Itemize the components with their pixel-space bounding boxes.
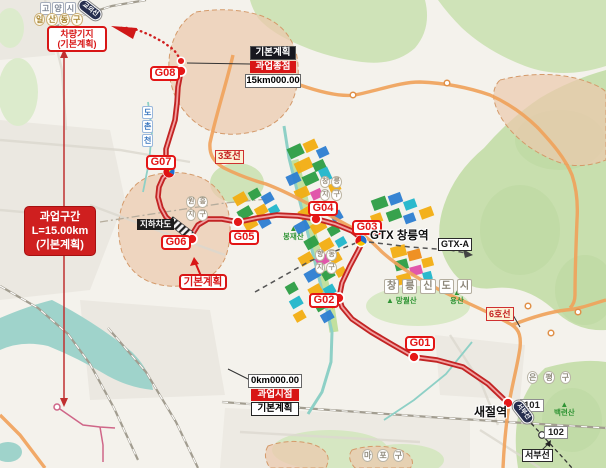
marker-g01 xyxy=(409,352,419,362)
station-label-g08: G08 xyxy=(150,66,180,81)
char-box: 천 xyxy=(142,134,153,147)
char-box: 구 xyxy=(393,449,404,462)
char-box: 시 xyxy=(457,279,472,294)
char-box: 산 xyxy=(46,13,57,26)
char-box: 릉 xyxy=(402,279,417,294)
station-label-g01: G01 xyxy=(405,336,435,351)
marker-g03-transfer xyxy=(355,235,366,246)
char-box: 창 xyxy=(384,279,399,294)
mt-baengnyeon: ▲ 백련산 xyxy=(554,401,575,417)
seobu-line-badge: 서부선 xyxy=(522,449,553,462)
char-box: 구 xyxy=(197,209,207,221)
label-wonheung-district: 원흥지구 xyxy=(186,196,208,221)
label-ilsan-donggu: 일산동구 xyxy=(34,13,83,26)
line3-badge: 3호선 xyxy=(215,150,244,164)
underpass-badge: 지하차도 xyxy=(137,219,174,230)
char-box: 신 xyxy=(420,279,435,294)
startpoint-chainage: 0km000.00 xyxy=(248,374,302,388)
mt-mangwol: ▲ 망월산 xyxy=(386,297,417,305)
startpoint-name: 과업시점 xyxy=(251,389,299,401)
marker-g08-upper xyxy=(177,57,185,65)
char-box: 구 xyxy=(560,371,571,384)
route-plan-map: 고양시 일산동구 교외선 차량기지 (기본계획) 기본계획 과업종점 15km0… xyxy=(0,0,606,468)
section-line3: (기본계획) xyxy=(27,238,93,252)
planned-branch-pink xyxy=(57,407,115,462)
char-box: 향 xyxy=(315,249,325,261)
label-mapo-gu: 마포구 xyxy=(362,449,404,462)
char-box: 포 xyxy=(377,449,388,462)
char-box: 은 xyxy=(527,371,538,384)
branch-endpoint xyxy=(54,404,60,410)
char-box: 동 xyxy=(326,249,336,261)
section-badge: 과업구간 L=15.00km (기본계획) xyxy=(24,206,96,256)
char-box: 동 xyxy=(59,13,70,26)
basic-plan-callout: 기본계획 xyxy=(179,274,227,290)
char-box: 지 xyxy=(186,209,196,221)
char-box: 구 xyxy=(326,262,336,274)
label-changneung-district: 창릉지구 xyxy=(320,176,342,201)
station-label-g06: G06 xyxy=(161,235,191,250)
station-label-g02: G02 xyxy=(309,293,339,308)
char-box: 구 xyxy=(71,13,82,26)
char-box: 창 xyxy=(320,176,330,188)
char-box: 릉 xyxy=(331,176,341,188)
depot-arrow xyxy=(111,26,137,39)
station-label-g04: G04 xyxy=(308,201,338,216)
char-box: 촌 xyxy=(142,120,153,133)
startpoint-callout: 0km000.00 과업시점 기본계획 xyxy=(248,374,302,416)
label-stream-dochon: 도촌천 xyxy=(142,106,153,147)
char-box: 도 xyxy=(439,279,454,294)
saejeol-station-name: 새절역 xyxy=(474,403,507,420)
mt-yong-name: 용산 xyxy=(450,296,464,305)
line6-badge: 6호선 xyxy=(486,307,514,321)
char-box: 지 xyxy=(315,262,325,274)
char-box: 흥 xyxy=(197,196,207,208)
char-box: 일 xyxy=(34,13,45,26)
endpoint-name: 과업종점 xyxy=(250,61,296,73)
station-102-badge: 102 xyxy=(544,426,568,439)
label-eunpyeong-gu: 은평구 xyxy=(527,371,571,384)
endpoint-callout: 기본계획 과업종점 15km000.00 xyxy=(250,46,301,88)
char-box: 지 xyxy=(320,189,330,201)
gtx-changneung-station-name: GTX 창릉역 xyxy=(370,227,429,243)
endpoint-plan: 기본계획 xyxy=(250,46,296,60)
mt-bongjae-name: 봉재산 xyxy=(283,232,304,241)
startpoint-plan: 기본계획 xyxy=(251,402,299,416)
mountain-icon: ▲ xyxy=(386,297,394,305)
char-box: 구 xyxy=(331,189,341,201)
label-hyangdong-district: 향동지구 xyxy=(315,249,337,274)
section-line1: 과업구간 xyxy=(27,210,93,224)
mt-bongjae: ▲ 봉재산 xyxy=(283,225,304,241)
char-box: 마 xyxy=(362,449,373,462)
depot-badge: 차량기지 (기본계획) xyxy=(47,26,107,52)
label-changneung-newtown: 창릉신도시 xyxy=(384,279,472,294)
gtx-a-badge: GTX-A xyxy=(438,238,472,251)
char-box: 도 xyxy=(142,106,153,119)
mt-mangwol-name: 망월산 xyxy=(396,297,417,305)
char-box: 원 xyxy=(186,196,196,208)
mt-baengnyeon-name: 백련산 xyxy=(554,408,575,417)
station-label-g05: G05 xyxy=(229,230,259,245)
depot-badge-line1: 차량기지 xyxy=(49,29,105,39)
char-box: 평 xyxy=(543,371,554,384)
endpoint-chainage: 15km000.00 xyxy=(245,74,301,88)
marker-g05 xyxy=(233,217,243,227)
depot-badge-line2: (기본계획) xyxy=(49,39,105,49)
station-label-g07: G07 xyxy=(146,155,176,170)
section-line2: L=15.00km xyxy=(27,224,93,238)
